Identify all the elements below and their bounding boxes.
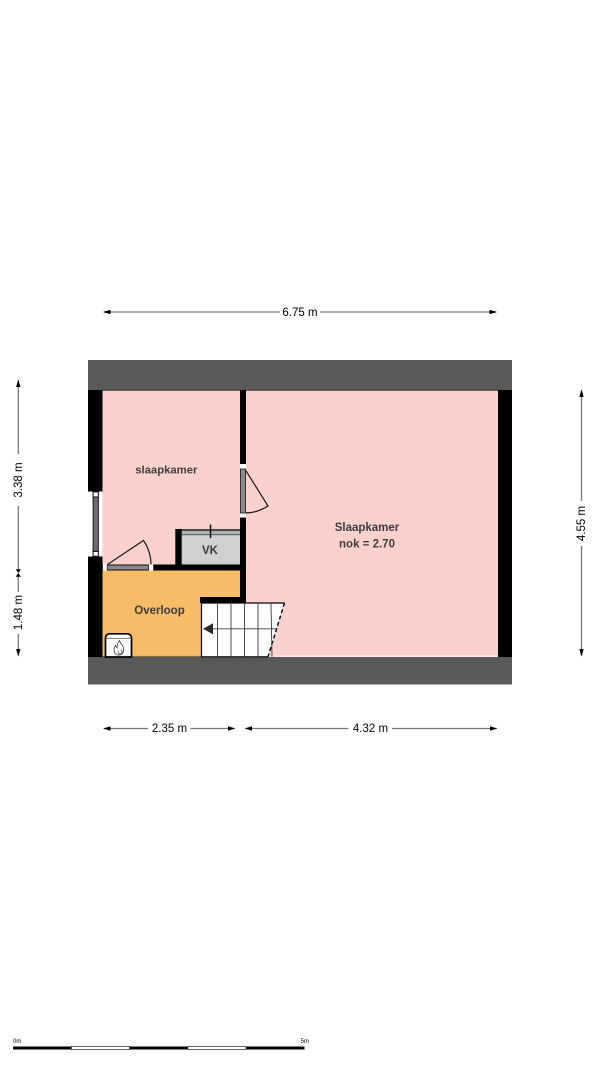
svg-text:0m: 0m [13, 1039, 21, 1045]
svg-text:Overloop: Overloop [134, 605, 184, 617]
svg-text:5m: 5m [301, 1039, 309, 1045]
svg-text:3.38 m: 3.38 m [13, 462, 25, 497]
svg-text:nok = 2.70: nok = 2.70 [339, 539, 395, 551]
svg-text:slaapkamer: slaapkamer [135, 465, 198, 477]
svg-text:4.55 m: 4.55 m [576, 506, 588, 541]
svg-text:6.75 m: 6.75 m [282, 307, 317, 319]
svg-text:VK: VK [202, 545, 219, 557]
svg-text:1.48 m: 1.48 m [13, 595, 25, 630]
svg-text:Slaapkamer: Slaapkamer [335, 522, 400, 534]
svg-text:4.32 m: 4.32 m [353, 723, 388, 735]
svg-text:2.35 m: 2.35 m [152, 723, 187, 735]
